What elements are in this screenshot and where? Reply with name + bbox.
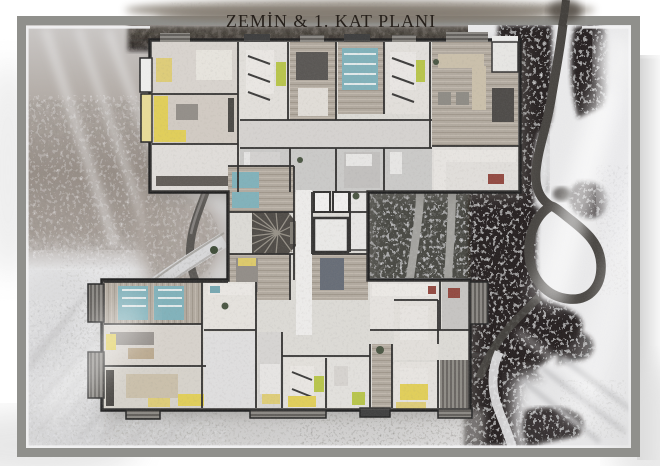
- svg-text:ZEMİN & 1. KAT PLANI: ZEMİN & 1. KAT PLANI: [226, 11, 436, 31]
